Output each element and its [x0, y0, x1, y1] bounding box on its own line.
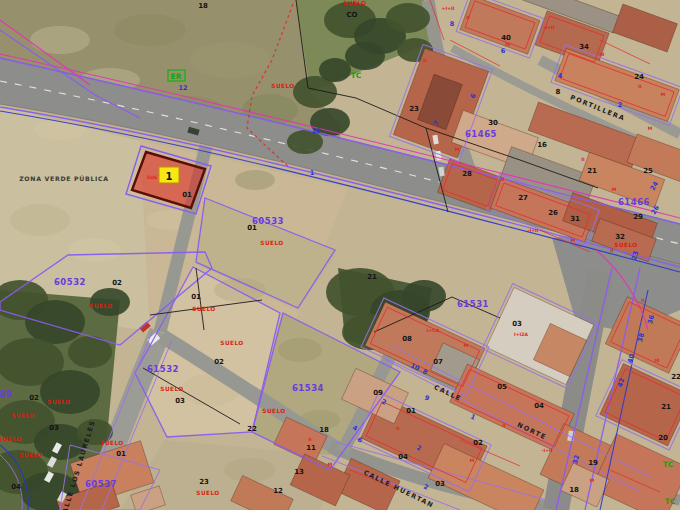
parcel-marker[interactable]: 1 [159, 167, 179, 183]
map-label-red: SUELO [343, 0, 366, 6]
map-label-green: ER [171, 72, 182, 81]
map-label-purple: 61465 [465, 129, 497, 139]
map-label-black: 21 [661, 403, 671, 411]
map-label-red: SUELO [11, 413, 34, 419]
map-label-black: 40 [501, 34, 511, 42]
map-label-purple: 60537 [85, 479, 117, 489]
map-label-blue: 4 [558, 72, 563, 80]
map-label-red: SUELO [271, 83, 294, 89]
map-label-red: SUELO [196, 490, 219, 496]
map-label-zone: ZONA VERDE PÚBLICA [19, 175, 109, 182]
map-label-blue: 10 [311, 127, 321, 135]
map-label-code: M [455, 147, 460, 152]
map-label-black: 08 [402, 335, 412, 343]
map-label-black: 22 [671, 373, 680, 381]
map-label-black: 03 [49, 424, 59, 432]
map-label-black: 21 [367, 273, 377, 281]
map-label-code: M [648, 126, 653, 131]
map-label-blue: 2 [618, 101, 623, 109]
map-label-black: 07 [433, 358, 443, 366]
map-label-black: 22 [247, 425, 257, 433]
map-label-code: -I+II [544, 25, 555, 30]
map-label-black: 04 [534, 402, 544, 410]
map-label-code: I+CA [427, 328, 440, 333]
map-canvas: 18COSUELOER12TCSUELO101ZONA VERDE PÚBLIC… [0, 0, 680, 510]
cadastral-map[interactable]: 18COSUELOER12TCSUELO101ZONA VERDE PÚBLIC… [0, 0, 680, 510]
map-label-code: III [599, 52, 604, 57]
map-label-code: SUE [147, 175, 157, 180]
map-label-red: SUELO [260, 240, 283, 246]
map-label-black: 27 [518, 194, 528, 202]
map-label-red: SUELO [614, 242, 637, 248]
map-label-black: 8 [556, 88, 561, 96]
map-label-code: M [571, 238, 576, 243]
map-label-black: 04 [11, 483, 21, 491]
map-label-black: 21 [587, 167, 597, 175]
map-label-code: II [423, 58, 427, 63]
map-label-black: 11 [306, 444, 316, 452]
map-label-black: 26 [548, 209, 558, 217]
map-label-black: 18 [319, 426, 329, 434]
map-label-code: II [610, 248, 614, 253]
map-label-code: II [641, 298, 645, 303]
map-label-black: 23 [409, 105, 419, 113]
map-label-black: 18 [569, 486, 579, 494]
map-label-blue: 12 [178, 84, 187, 92]
map-label-black: 09 [373, 389, 383, 397]
map-label-purple: 60532 [54, 277, 86, 287]
map-label-purple: 61531 [457, 299, 489, 309]
map-label-black: 18 [198, 2, 208, 10]
map-label-black: 12 [273, 487, 283, 495]
map-label-red: SUELO [100, 440, 123, 446]
map-label-blue: 8 [450, 20, 455, 28]
map-label-red: SUELO [0, 436, 22, 442]
map-label-purple: 61532 [147, 364, 179, 374]
map-label-code: M [464, 343, 469, 348]
map-label-code: M [661, 92, 666, 97]
map-label-black: 19 [588, 459, 598, 467]
map-label-black: CO [346, 11, 357, 19]
map-label-black: 01 [182, 191, 192, 199]
map-label-code: II [466, 15, 470, 20]
map-label-black: 02 [214, 358, 224, 366]
map-label-black: 01 [116, 450, 126, 458]
map-label-code: IV [505, 42, 511, 47]
map-label-black: 31 [570, 215, 580, 223]
map-label-black: 01 [247, 224, 257, 232]
map-label-purple: 61534 [292, 383, 324, 393]
map-label-code: I+I2A [514, 332, 528, 337]
map-label-black: 20 [658, 434, 668, 442]
map-label-code: II [501, 177, 505, 182]
map-label-blue: 6 [501, 47, 506, 55]
map-label-code: II [638, 84, 642, 89]
map-label-black: 16 [537, 141, 547, 149]
map-label-black: 03 [435, 480, 445, 488]
map-label-blue: 1 [310, 169, 315, 177]
map-label-black: 30 [488, 119, 498, 127]
map-label-black: 01 [191, 293, 201, 301]
map-label-green: TC [663, 460, 674, 469]
map-label-black: 03 [512, 320, 522, 328]
map-label-black: 34 [579, 43, 589, 51]
map-label-code: M [612, 187, 617, 192]
map-label-red: SUELO [19, 452, 42, 458]
map-label-red: SUELO [160, 386, 183, 392]
map-label-code: III [654, 358, 659, 363]
map-label-black: 02 [112, 279, 122, 287]
map-label-black: 04 [398, 453, 408, 461]
map-label-red: SUELO [262, 408, 285, 414]
map-label-code: -I+II [528, 228, 539, 233]
map-label-purple: 61466 [618, 197, 650, 207]
map-label-red: SUELO [89, 303, 112, 309]
map-label-black: 02 [29, 394, 39, 402]
map-label-purple: 89 [0, 389, 12, 399]
map-label-black: 25 [643, 167, 653, 175]
map-label-green: TC [665, 497, 676, 506]
map-label-red: SUELO [47, 399, 70, 405]
map-label-black: 03 [175, 397, 185, 405]
map-label-code: M [470, 458, 475, 463]
map-label-black: 24 [634, 73, 644, 81]
map-label-black: 28 [462, 170, 472, 178]
map-label-code: M [328, 462, 333, 467]
map-label-black: 32 [615, 233, 625, 241]
map-label-black: 05 [497, 383, 507, 391]
map-label-code: -I+II [542, 448, 553, 453]
map-label-code: II [502, 423, 506, 428]
map-label-code: II [308, 437, 312, 442]
map-label-green: TC [351, 71, 362, 80]
map-label-code: M [590, 478, 595, 483]
map-label-code: II [581, 157, 585, 162]
map-label-black: 01 [406, 407, 416, 415]
map-label-code: II [396, 426, 400, 431]
map-label-red: SUELO [220, 340, 243, 346]
map-label-black: 02 [473, 439, 483, 447]
map-label-black: 23 [199, 478, 209, 486]
map-label-black: 13 [294, 468, 304, 476]
map-label-black: 29 [633, 213, 643, 221]
map-label-red: SUELO [192, 306, 215, 312]
map-label-code: +I+II [442, 6, 455, 11]
marker-number: 1 [166, 171, 173, 182]
